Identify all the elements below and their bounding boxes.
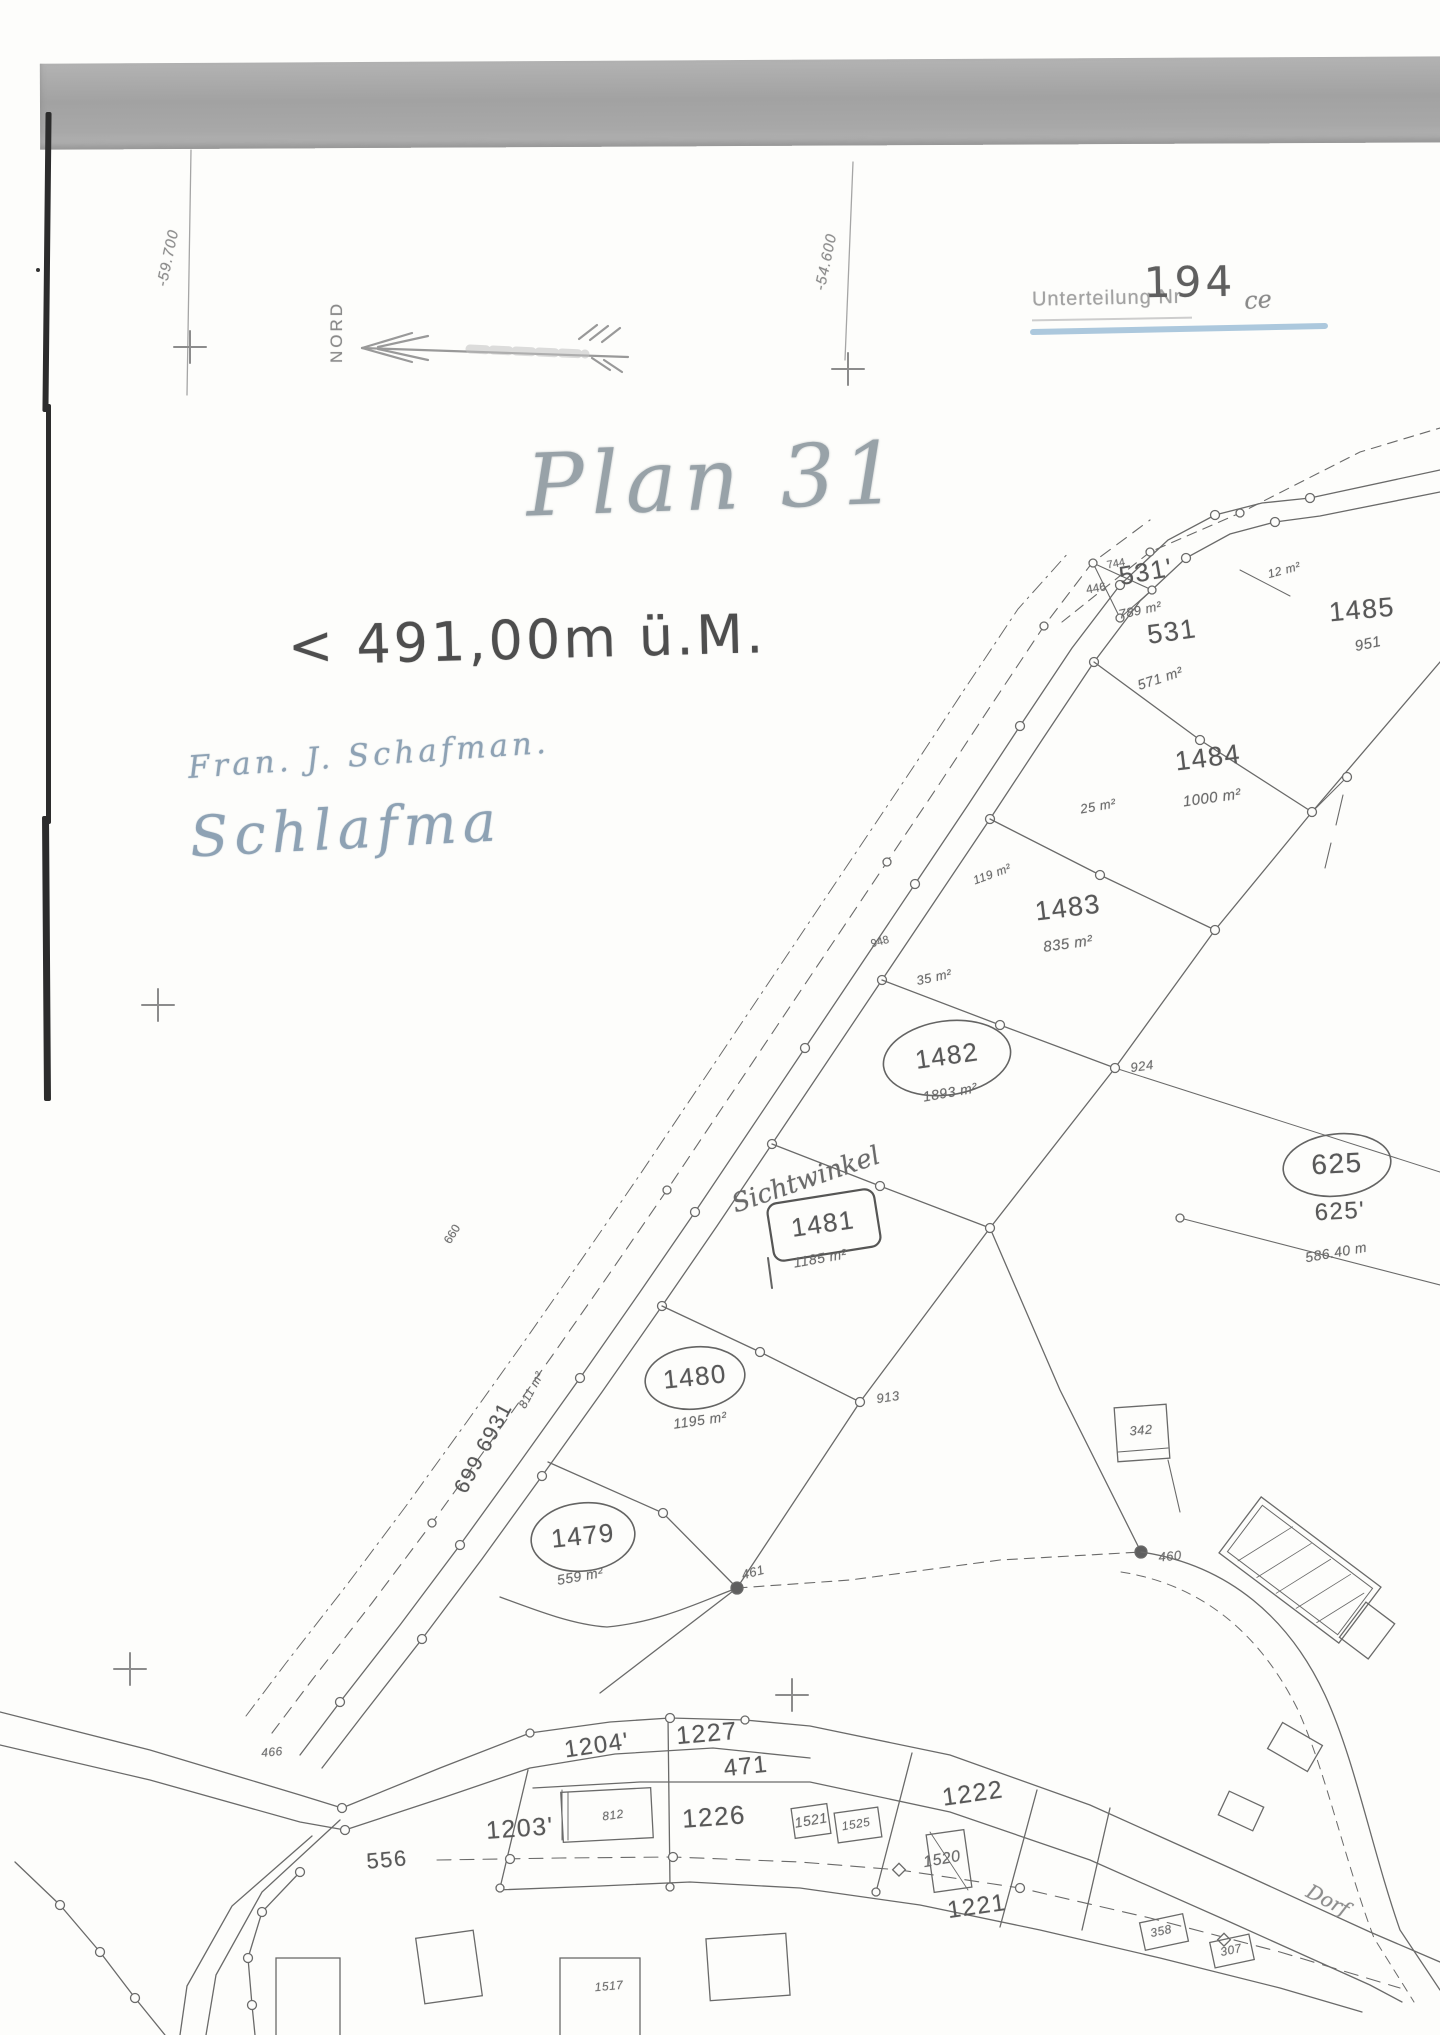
point-label: 460 [1158, 1548, 1182, 1565]
parcel-number: 1226 [681, 1799, 747, 1834]
parcel-number: 1203' [485, 1812, 555, 1846]
elevation-note: < 491,00m ü.M. [287, 602, 767, 677]
point-label: 466 [261, 1744, 284, 1760]
grid-marks [114, 150, 864, 1711]
building-label: 812 [601, 1807, 624, 1824]
parcel-number: 1479 [550, 1517, 617, 1555]
point-label: 924 [1129, 1057, 1154, 1075]
north-arrow [362, 325, 628, 372]
right-side-buildings [1114, 1404, 1440, 2002]
point-label: 913 [875, 1388, 900, 1406]
parcel-number: 471 [722, 1751, 769, 1784]
parcel-number: 625' [1314, 1197, 1366, 1228]
parcel-number: 625 [1311, 1147, 1364, 1182]
parcel-number: 1480 [662, 1358, 729, 1396]
parcel-boundaries [500, 662, 1440, 1693]
parcel-number: 556 [365, 1845, 408, 1874]
building-label: 342 [1129, 1422, 1153, 1439]
stamp-suffix: ce [1243, 285, 1273, 315]
parcel-number: 1227 [675, 1717, 739, 1751]
north-label: NORD [327, 301, 347, 363]
building-label: 1517 [594, 1978, 624, 1994]
plan-title: Plan 31 [524, 423, 905, 536]
scanned-cadastral-plan: Unterteilung Nr 194 ce -59.700 -54.600 N… [0, 0, 1440, 2035]
stamp-number: 194 [1143, 257, 1236, 308]
parcel-number: 1485 [1328, 592, 1397, 629]
bottom-buildings [276, 1788, 1254, 2035]
bottom-road-network [0, 1712, 1440, 2035]
